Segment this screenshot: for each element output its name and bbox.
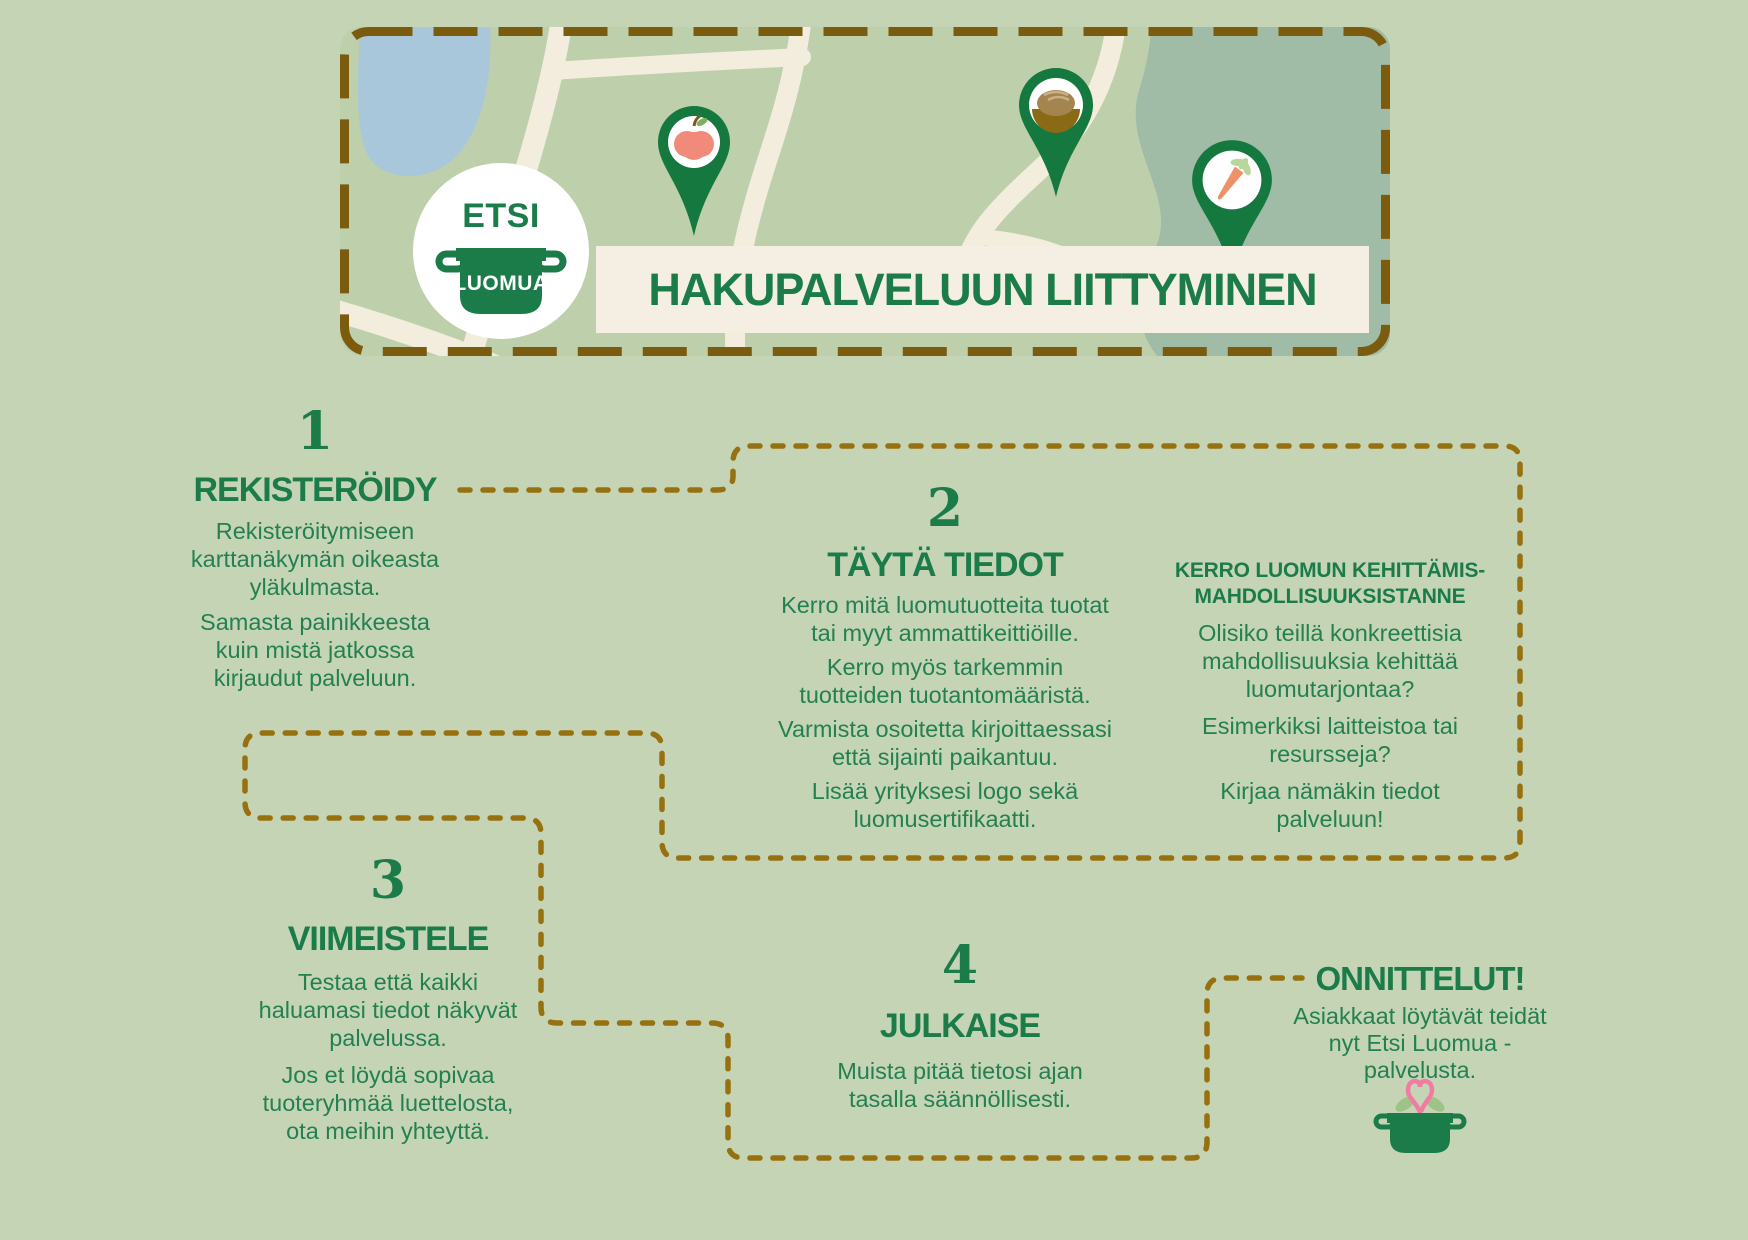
step-4-paragraph: Muista pitää tietosi ajan tasalla säännö… bbox=[780, 1057, 1140, 1113]
step-4-publish: 4 JULKAISE Muista pitää tietosi ajan tas… bbox=[780, 940, 1140, 1113]
step-1-title: REKISTERÖIDY bbox=[135, 470, 495, 510]
etsi-luomua-logo: ETSI LUOMUA bbox=[413, 163, 589, 339]
step-3-title: VIIMEISTELE bbox=[208, 919, 568, 959]
infographic-canvas: HAKUPALVELUUN LIITTYMINEN ETSI LUOMUA 1 … bbox=[0, 0, 1748, 1240]
side-note-paragraph: Kirjaa nämäkin tiedot palveluun! bbox=[1150, 777, 1510, 833]
step-2-paragraph: Kerro mitä luomutuotteita tuotat tai myy… bbox=[765, 591, 1125, 647]
step-3-paragraph: Testaa että kaikki haluamasi tiedot näky… bbox=[208, 968, 568, 1052]
pot-heart-icon bbox=[1372, 1066, 1468, 1158]
side-note-paragraph: Olisiko teillä konkreettisia mahdollisuu… bbox=[1150, 619, 1510, 703]
step-2-title: TÄYTÄ TIEDOT bbox=[765, 545, 1125, 585]
title-banner: HAKUPALVELUUN LIITTYMINEN bbox=[596, 246, 1369, 333]
side-note-development: KERRO LUOMUN KEHITTÄMIS- MAHDOLLISUUKSIS… bbox=[1150, 558, 1510, 833]
step-1-number: 1 bbox=[135, 406, 495, 458]
step-1-register: 1 REKISTERÖIDY Rekisteröitymiseen kartta… bbox=[135, 406, 495, 692]
step-2-paragraph: Varmista osoitetta kirjoittaessasi että … bbox=[765, 715, 1125, 771]
step-4-number: 4 bbox=[780, 940, 1140, 992]
outro-title: ONNITTELUT! bbox=[1240, 958, 1600, 1000]
step-3-number: 3 bbox=[208, 855, 568, 907]
side-note-paragraph: Esimerkiksi laitteistoa tai resursseja? bbox=[1150, 712, 1510, 768]
step-2-fill-info: 2 TÄYTÄ TIEDOT Kerro mitä luomutuotteita… bbox=[765, 483, 1125, 833]
step-4-title: JULKAISE bbox=[780, 1006, 1140, 1046]
logo-text-etsi: ETSI bbox=[413, 197, 589, 236]
step-3-paragraph: Jos et löydä sopivaa tuoteryhmää luettel… bbox=[208, 1061, 568, 1145]
step-1-paragraph: Rekisteröitymiseen karttanäkymän oikeast… bbox=[135, 517, 495, 601]
logo-text-luomua: LUOMUA bbox=[431, 272, 571, 296]
header-map: HAKUPALVELUUN LIITTYMINEN ETSI LUOMUA bbox=[340, 27, 1390, 356]
step-3-finalize: 3 VIIMEISTELE Testaa että kaikki haluama… bbox=[208, 855, 568, 1145]
step-2-number: 2 bbox=[765, 483, 1125, 535]
step-2-paragraph: Kerro myös tarkemmin tuotteiden tuotanto… bbox=[765, 653, 1125, 709]
step-2-paragraph: Lisää yrityksesi logo sekä luomusertifik… bbox=[765, 777, 1125, 833]
side-note-title: KERRO LUOMUN KEHITTÄMIS- MAHDOLLISUUKSIS… bbox=[1150, 558, 1510, 610]
step-1-paragraph: Samasta painikkeesta kuin mistä jatkossa… bbox=[135, 608, 495, 692]
page-title: HAKUPALVELUUN LIITTYMINEN bbox=[648, 264, 1316, 316]
